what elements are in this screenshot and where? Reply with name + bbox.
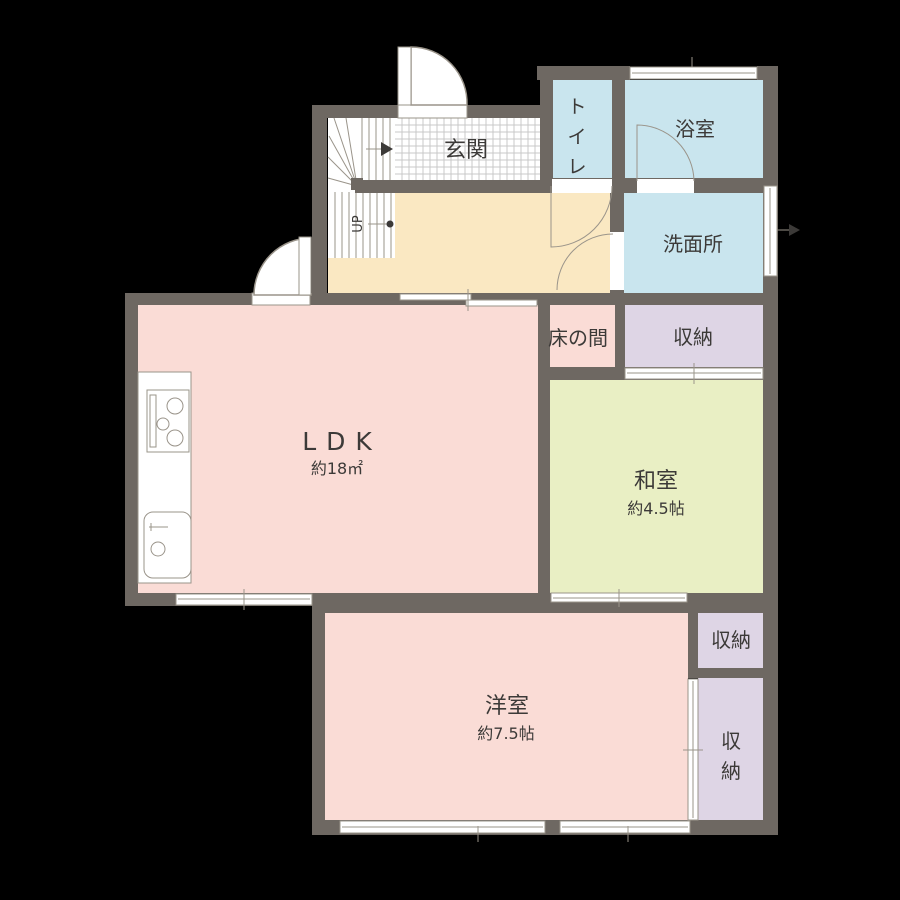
wall-stairs-left	[312, 105, 327, 297]
kitchen	[138, 372, 191, 583]
floor-plan-canvas: UP	[0, 0, 900, 900]
ldk-sliding-door-leaf-1	[400, 294, 471, 300]
stair-start-dot-icon	[387, 221, 394, 228]
ldk-label: LDK	[302, 427, 382, 456]
toilet-label-char-2: イ	[567, 126, 586, 148]
wall-youshitsu-top	[312, 600, 778, 613]
wall-stair-mid-stub	[355, 183, 395, 192]
washroom-label: 洗面所	[663, 232, 723, 256]
wall-youshitsu-left	[312, 600, 325, 835]
ldk-sliding-door-leaf-2	[466, 300, 537, 306]
toilet-door-opening	[552, 179, 612, 193]
stairs-up-label: UP	[351, 215, 366, 233]
ldk-exterior-door-panel	[299, 237, 311, 295]
genkan-label: 玄関	[444, 138, 488, 163]
wall-tokonoma-storage-divider	[615, 305, 625, 367]
wall-toilet-left	[540, 66, 553, 193]
youshitsu-label: 洋室	[485, 694, 529, 719]
storage-mid-label: 収納	[711, 628, 751, 652]
entrance-door-sill	[398, 105, 467, 118]
storage-bottom-label-char-1: 収	[721, 729, 741, 753]
washitsu-label: 和室	[634, 469, 678, 494]
bathroom-label: 浴室	[675, 117, 715, 141]
wall-storage-divider	[688, 668, 778, 678]
toilet-label-char-1: ト	[567, 96, 586, 118]
ldk-area-label: 約18㎡	[311, 459, 363, 478]
wall-outer-right	[763, 66, 778, 835]
youshitsu-area-label: 約7.5帖	[477, 724, 534, 743]
entrance-door-panel	[398, 47, 411, 105]
washroom-door-opening	[610, 232, 624, 290]
wall-ldk-left	[125, 293, 138, 605]
tokonoma-label: 床の間	[548, 326, 608, 350]
toilet-label-char-3: レ	[567, 156, 586, 178]
wall-toilet-bath-divider	[612, 66, 625, 178]
storage-top-label: 収納	[673, 325, 713, 349]
entrance-door-swing-icon	[411, 47, 467, 105]
wall-storage-mid-left	[688, 600, 698, 668]
washitsu-area-label: 約4.5帖	[627, 499, 684, 518]
storage-bottom-label-char-2: 納	[721, 759, 741, 783]
washroom-exit-arrow-icon	[789, 224, 800, 236]
floor-plan: UP	[0, 0, 900, 900]
bathroom-door-opening	[637, 179, 694, 193]
